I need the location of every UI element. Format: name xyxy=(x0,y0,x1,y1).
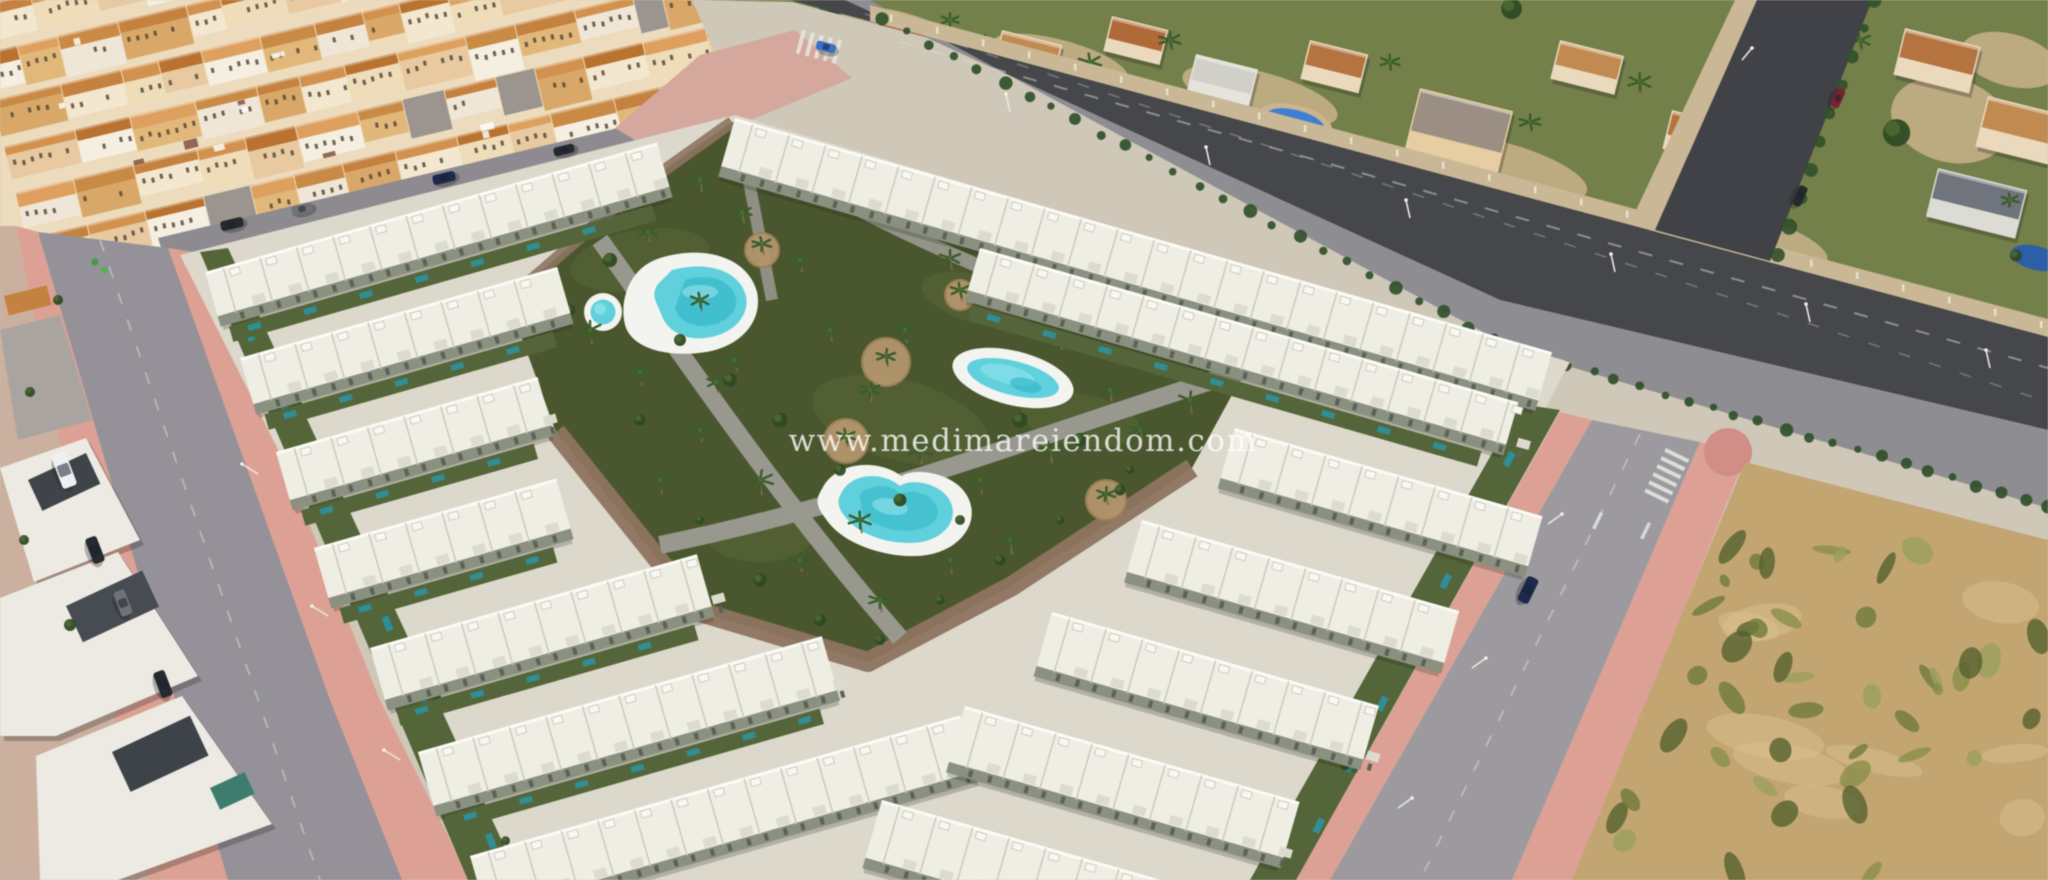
aerial-development-render: www.medimareiendom.com xyxy=(0,0,2048,880)
watermark: www.medimareiendom.com xyxy=(789,423,1258,459)
